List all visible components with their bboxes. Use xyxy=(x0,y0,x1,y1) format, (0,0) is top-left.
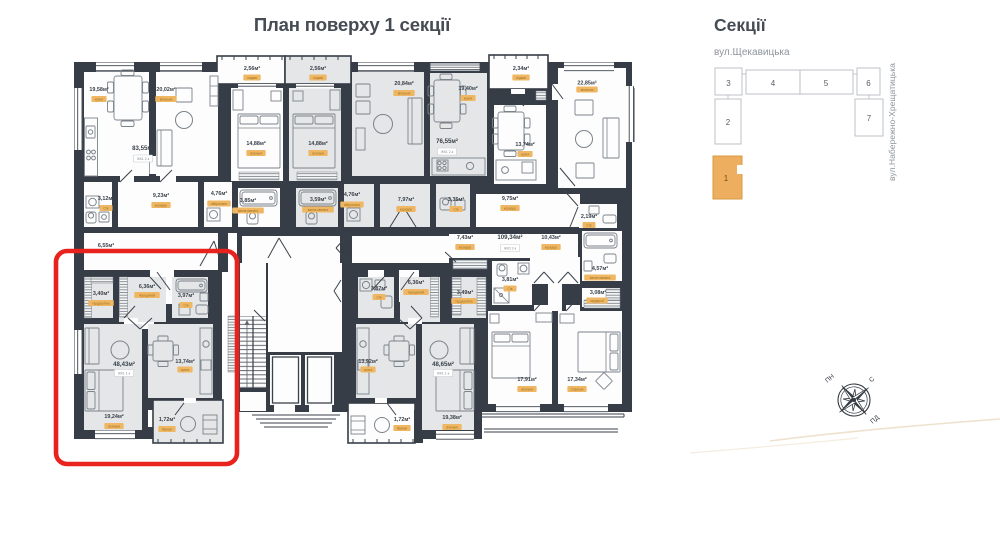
svg-text:3,59м²: 3,59м² xyxy=(310,197,326,203)
svg-text:3,40м²: 3,40м² xyxy=(93,291,109,297)
svg-text:13,74м²: 13,74м² xyxy=(515,142,534,148)
svg-text:спальня: спальня xyxy=(108,425,120,429)
svg-text:9,23м²: 9,23м² xyxy=(153,193,169,199)
svg-text:ванна кімната: ванна кімната xyxy=(238,209,259,213)
svg-text:вбиральня: вбиральня xyxy=(344,203,360,207)
svg-text:ванна кімната: ванна кімната xyxy=(308,208,329,212)
svg-text:ЖК1 1-к: ЖК1 1-к xyxy=(437,372,450,376)
svg-text:спальня: спальня xyxy=(521,388,533,392)
svg-text:83,55м²: 83,55м² xyxy=(132,145,154,152)
svg-text:ЖК1 2-к: ЖК1 2-к xyxy=(137,157,150,161)
svg-text:1,72м²: 1,72м² xyxy=(159,417,175,423)
svg-text:3,87м²: 3,87м² xyxy=(371,286,387,292)
svg-text:76,55м²: 76,55м² xyxy=(436,138,458,145)
svg-text:9,75м²: 9,75м² xyxy=(502,196,518,202)
svg-text:С/в: С/в xyxy=(184,304,189,308)
svg-text:7: 7 xyxy=(867,114,872,123)
svg-text:3,81м²: 3,81м² xyxy=(502,277,518,283)
svg-text:спальня: спальня xyxy=(250,152,262,156)
svg-text:ванна кімната: ванна кімната xyxy=(590,276,611,280)
svg-text:ЖК1 2-к: ЖК1 2-к xyxy=(441,150,454,154)
svg-text:3,08м²: 3,08м² xyxy=(590,290,606,296)
svg-text:С/в: С/в xyxy=(377,296,382,300)
svg-text:6,36м²: 6,36м² xyxy=(139,284,155,290)
svg-text:2,19м²: 2,19м² xyxy=(581,214,597,220)
svg-text:гардероб: гардероб xyxy=(590,299,604,303)
svg-text:вітальня: вітальня xyxy=(398,92,411,96)
svg-text:С/в: С/в xyxy=(508,287,513,291)
svg-text:10,43м²: 10,43м² xyxy=(541,235,560,241)
svg-text:4,76м²: 4,76м² xyxy=(344,192,360,198)
svg-text:передпокій: передпокій xyxy=(408,291,424,295)
svg-text:2,34м²: 2,34м² xyxy=(513,66,529,72)
svg-text:13,92м²: 13,92м² xyxy=(358,359,377,365)
svg-text:передпокій: передпокій xyxy=(139,294,155,298)
svg-text:2,56м²: 2,56м² xyxy=(244,66,260,72)
svg-text:4: 4 xyxy=(771,79,776,88)
svg-text:20,02м²: 20,02м² xyxy=(156,87,175,93)
svg-text:48,65м²: 48,65м² xyxy=(432,361,454,368)
svg-text:19,58м²: 19,58м² xyxy=(89,87,108,93)
svg-text:2,56м²: 2,56м² xyxy=(310,66,326,72)
svg-text:коридор: коридор xyxy=(545,246,557,250)
svg-text:ЖК1 1-к: ЖК1 1-к xyxy=(118,372,131,376)
svg-text:гардеробна: гардеробна xyxy=(92,302,109,306)
svg-text:6,36м²: 6,36м² xyxy=(408,280,424,286)
svg-text:6,55м²: 6,55м² xyxy=(98,243,114,249)
svg-text:вбиральня: вбиральня xyxy=(211,202,227,206)
svg-text:спальня: спальня xyxy=(446,426,458,430)
svg-text:1,72м²: 1,72м² xyxy=(394,417,410,423)
svg-text:2: 2 xyxy=(726,118,731,127)
svg-text:вітальня: вітальня xyxy=(581,88,594,92)
svg-text:Спальня: Спальня xyxy=(571,388,584,392)
svg-text:С/в: С/в xyxy=(587,224,592,228)
svg-text:3,12м²: 3,12м² xyxy=(98,196,114,202)
svg-text:48,43м²: 48,43м² xyxy=(113,361,135,368)
svg-text:3,85м²: 3,85м² xyxy=(240,198,256,204)
svg-text:вул.Щекавицька: вул.Щекавицька xyxy=(714,47,790,58)
svg-text:14,88м²: 14,88м² xyxy=(308,141,327,147)
svg-text:коридор: коридор xyxy=(459,246,471,250)
svg-text:4,57м²: 4,57м² xyxy=(592,266,608,272)
svg-text:лоджія: лоджія xyxy=(516,76,526,80)
svg-text:17,91м²: 17,91м² xyxy=(517,377,536,383)
svg-text:кухня: кухня xyxy=(464,97,472,101)
svg-text:лоджія: лоджія xyxy=(247,76,257,80)
svg-text:кухня: кухня xyxy=(181,368,189,372)
svg-text:гардеробна: гардеробна xyxy=(455,300,472,304)
svg-text:5: 5 xyxy=(824,79,829,88)
svg-text:вітальня: вітальня xyxy=(160,98,173,102)
svg-text:1: 1 xyxy=(724,174,729,183)
svg-text:7,97м²: 7,97м² xyxy=(398,197,414,203)
svg-text:балкон: балкон xyxy=(162,428,173,432)
svg-text:3,49м²: 3,49м² xyxy=(457,290,473,296)
svg-text:План поверху 1 секції: План поверху 1 секції xyxy=(254,14,451,35)
svg-text:3,35м²: 3,35м² xyxy=(448,197,464,203)
svg-text:14,88м²: 14,88м² xyxy=(246,141,265,147)
svg-text:коридор: коридор xyxy=(400,208,412,212)
svg-text:13,74м²: 13,74м² xyxy=(175,359,194,365)
svg-text:19,24м²: 19,24м² xyxy=(104,414,123,420)
svg-text:19,40м²: 19,40м² xyxy=(458,86,477,92)
svg-text:Секції: Секції xyxy=(714,15,767,35)
svg-text:коридор: коридор xyxy=(155,204,167,208)
svg-text:кухня: кухня xyxy=(95,98,103,102)
svg-text:ЖК3 2-к: ЖК3 2-к xyxy=(504,247,517,251)
svg-text:6: 6 xyxy=(866,79,871,88)
svg-text:22,85м²: 22,85м² xyxy=(577,81,596,87)
svg-text:балкон: балкон xyxy=(397,427,408,431)
svg-text:109,34м²: 109,34м² xyxy=(497,234,522,241)
svg-text:коридор: коридор xyxy=(504,207,516,211)
svg-text:3: 3 xyxy=(726,79,731,88)
svg-text:4,76м²: 4,76м² xyxy=(211,191,227,197)
svg-text:кухня: кухня xyxy=(364,368,372,372)
svg-text:7,43м²: 7,43м² xyxy=(457,235,473,241)
svg-text:вул.Набережно-Хрещатицька: вул.Набережно-Хрещатицька xyxy=(887,63,897,181)
svg-text:20,84м²: 20,84м² xyxy=(394,81,413,87)
svg-text:лоджія: лоджія xyxy=(313,76,323,80)
svg-text:19,38м²: 19,38м² xyxy=(442,415,461,421)
svg-text:17,34м²: 17,34м² xyxy=(567,377,586,383)
svg-text:спальня: спальня xyxy=(312,152,324,156)
svg-text:3,97м²: 3,97м² xyxy=(178,293,194,299)
svg-text:С/в: С/в xyxy=(104,207,109,211)
svg-text:кухня: кухня xyxy=(521,153,529,157)
svg-text:С/в: С/в xyxy=(454,208,459,212)
